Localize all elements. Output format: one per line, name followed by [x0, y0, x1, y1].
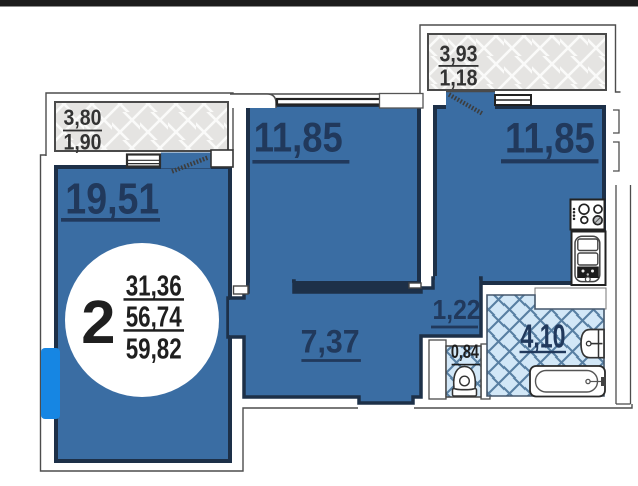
svg-text:2: 2 — [81, 288, 115, 357]
svg-text:3,93: 3,93 — [440, 41, 478, 67]
svg-text:19,51: 19,51 — [65, 175, 159, 224]
svg-text:11,85: 11,85 — [505, 116, 595, 163]
svg-text:3,80: 3,80 — [64, 105, 102, 130]
svg-text:4,10: 4,10 — [521, 318, 566, 355]
svg-text:59,82: 59,82 — [126, 334, 182, 366]
svg-text:1,90: 1,90 — [64, 130, 102, 155]
svg-text:7,37: 7,37 — [301, 323, 360, 359]
svg-text:56,74: 56,74 — [126, 302, 182, 334]
svg-text:1,18: 1,18 — [440, 64, 478, 90]
svg-text:31,36: 31,36 — [126, 271, 182, 303]
svg-text:11,85: 11,85 — [254, 114, 343, 161]
svg-text:0,84: 0,84 — [451, 341, 479, 363]
svg-text:1,22: 1,22 — [433, 294, 481, 325]
